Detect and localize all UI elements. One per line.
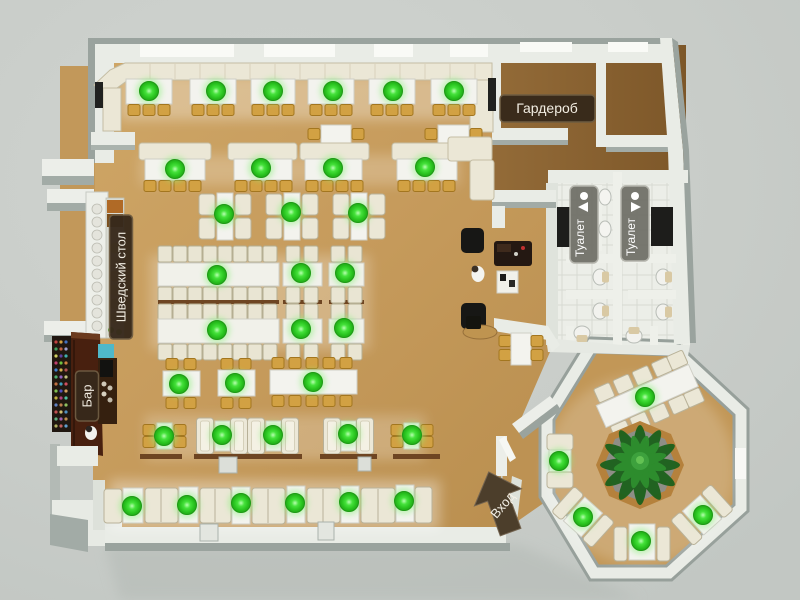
svg-text:Туалет: Туалет — [573, 219, 587, 257]
svg-text:Бар: Бар — [80, 385, 95, 408]
svg-text:Шведский стол: Шведский стол — [114, 232, 129, 322]
svg-text:Туалет: Туалет — [624, 218, 638, 256]
svg-text:Гардероб: Гардероб — [516, 100, 578, 116]
